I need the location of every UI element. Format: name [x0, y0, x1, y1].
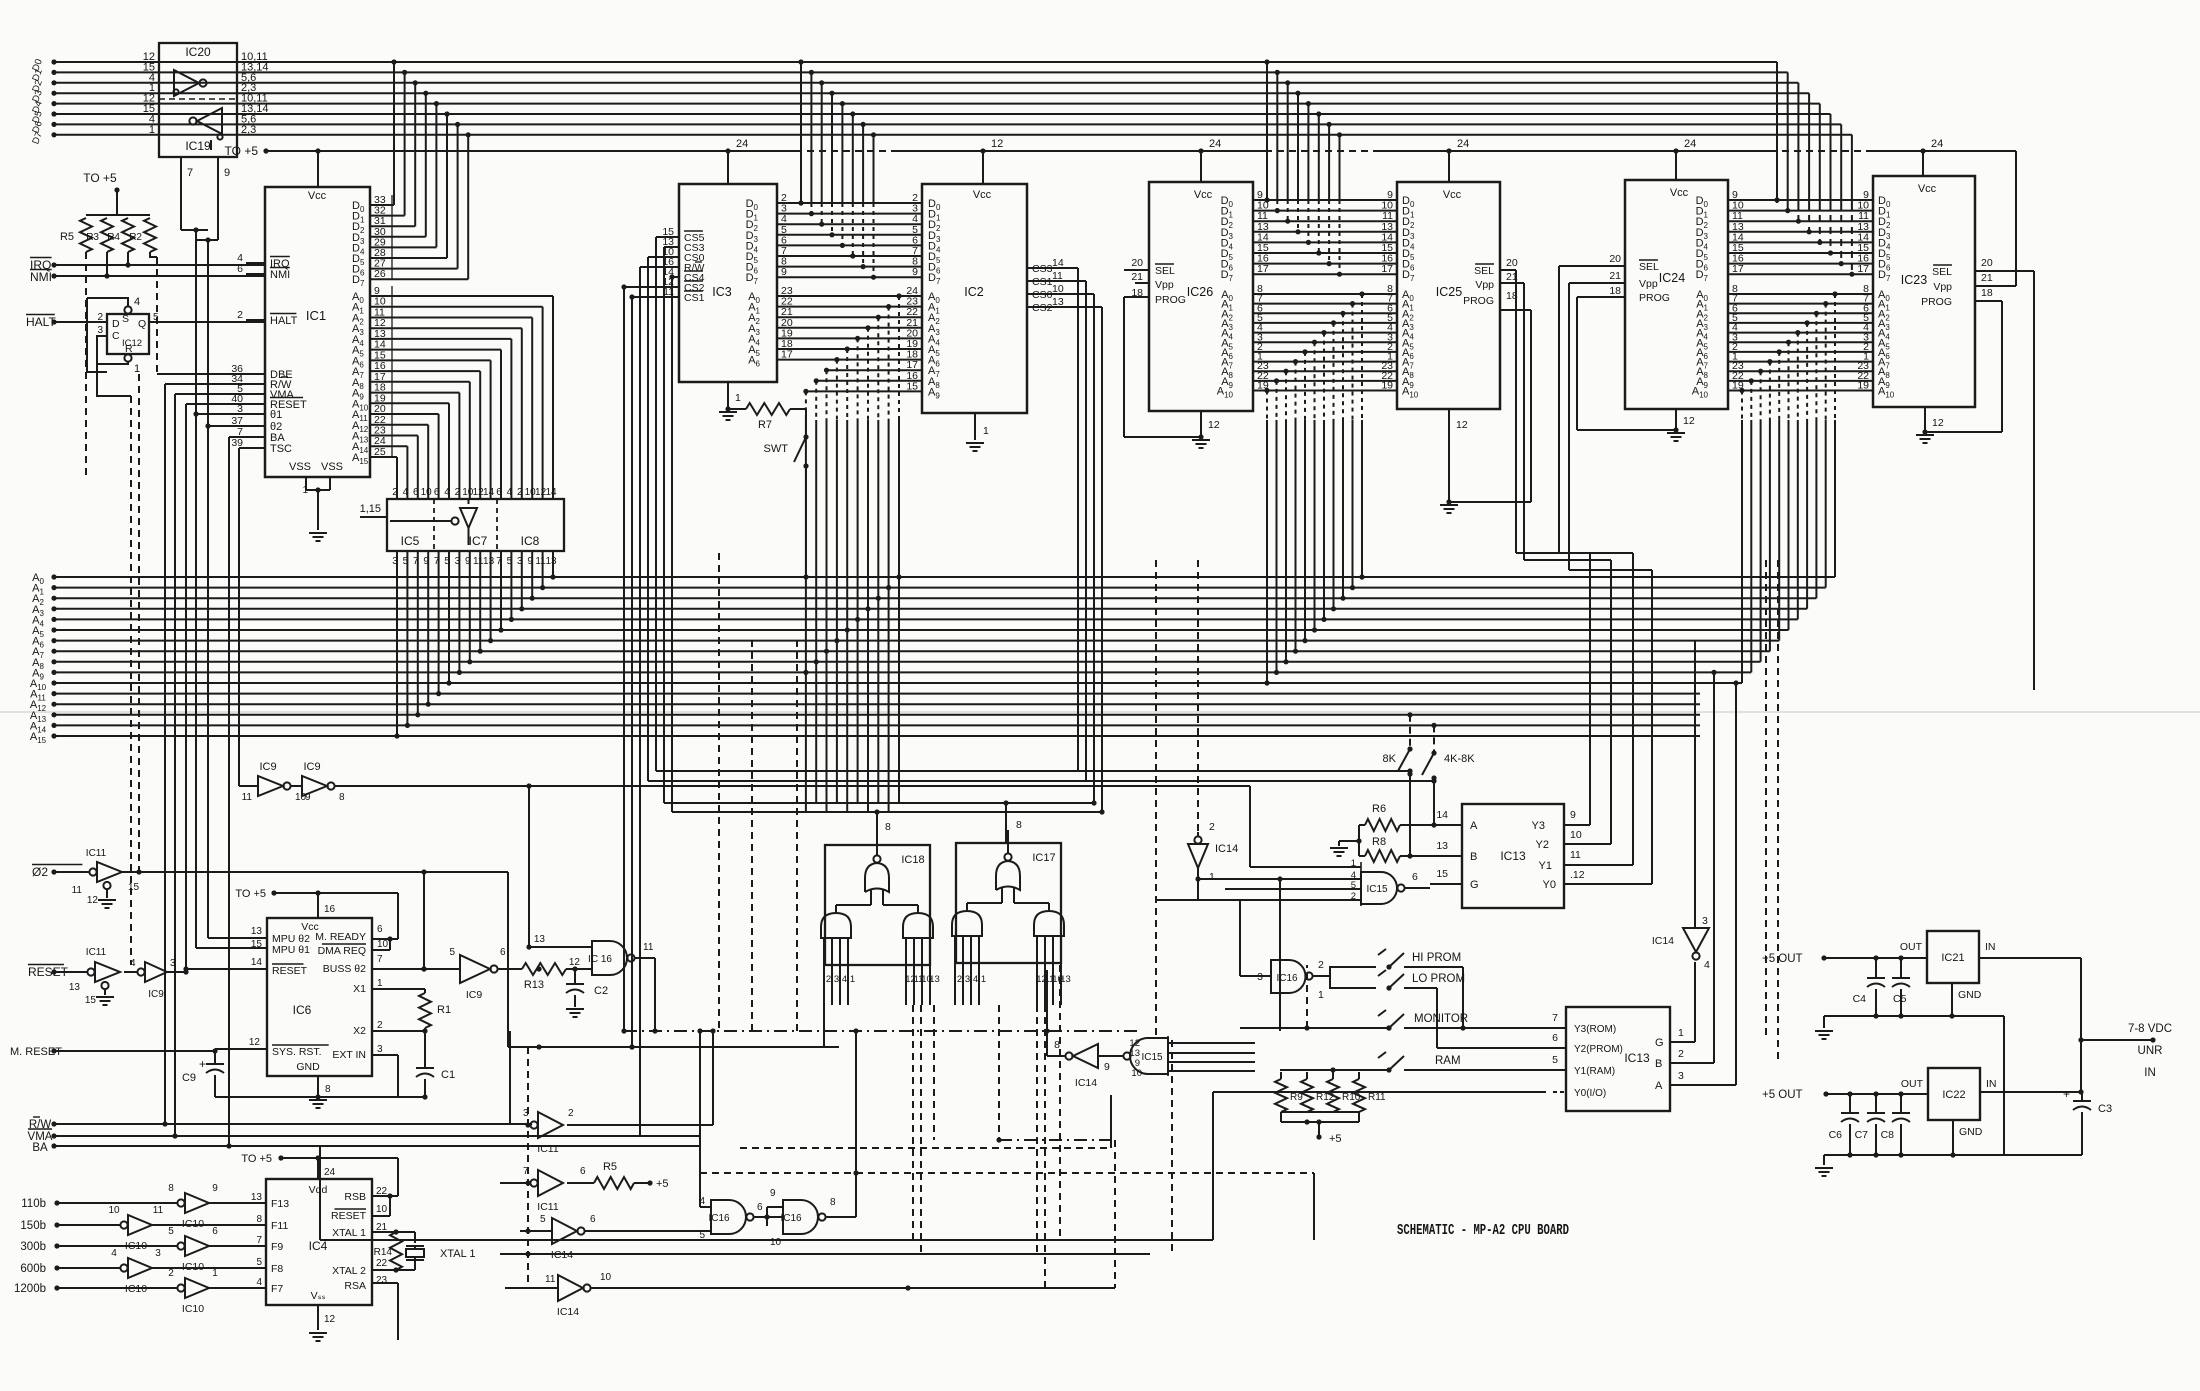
svg-text:6: 6 — [434, 487, 440, 498]
svg-text:IC22: IC22 — [1942, 1089, 1965, 1101]
svg-text:C7: C7 — [1855, 1129, 1869, 1141]
svg-text:4: 4 — [444, 487, 450, 498]
svg-text:10: 10 — [1131, 1068, 1142, 1079]
svg-text:+5: +5 — [656, 1178, 669, 1190]
svg-text:A: A — [1655, 1080, 1663, 1092]
svg-text:14: 14 — [545, 487, 557, 498]
svg-text:7: 7 — [1552, 1012, 1558, 1024]
svg-text:R14: R14 — [374, 1247, 393, 1258]
svg-text:C2: C2 — [594, 985, 608, 997]
svg-text:RESET: RESET — [331, 1210, 367, 1222]
svg-text:Y2(PROM): Y2(PROM) — [1574, 1044, 1623, 1055]
svg-text:7-8 VDC: 7-8 VDC — [2128, 1023, 2172, 1035]
svg-text:2: 2 — [1318, 959, 1324, 971]
svg-text:1: 1 — [1351, 858, 1356, 869]
svg-text:18: 18 — [1609, 285, 1621, 297]
svg-text:R6: R6 — [1372, 803, 1386, 815]
svg-text:2: 2 — [237, 309, 243, 321]
svg-text:3: 3 — [377, 1044, 383, 1055]
svg-text:2: 2 — [377, 1020, 383, 1031]
svg-text:8: 8 — [168, 1183, 174, 1194]
svg-text:1: 1 — [212, 1268, 218, 1279]
svg-text:Vcc: Vcc — [1918, 183, 1937, 195]
svg-text:5: 5 — [449, 947, 455, 958]
svg-text:Q: Q — [138, 318, 146, 330]
svg-text:8K: 8K — [1383, 753, 1397, 765]
svg-text:13: 13 — [251, 926, 263, 937]
svg-text:GND: GND — [1959, 1126, 1983, 1138]
svg-text:5: 5 — [1552, 1054, 1558, 1066]
svg-text:3: 3 — [834, 974, 839, 985]
svg-text:PROG: PROG — [1463, 295, 1494, 307]
svg-text:6: 6 — [212, 1226, 218, 1237]
svg-text:IC7: IC7 — [469, 534, 488, 548]
svg-text:IC17: IC17 — [1032, 852, 1055, 864]
svg-text:11: 11 — [242, 792, 253, 803]
svg-text:15: 15 — [128, 882, 140, 893]
svg-text:GND: GND — [1958, 989, 1982, 1001]
svg-text:D: D — [112, 318, 120, 330]
svg-text:Vₛₛ: Vₛₛ — [311, 1290, 326, 1302]
svg-text:SWT: SWT — [764, 443, 789, 455]
svg-text:C1: C1 — [441, 1069, 455, 1081]
svg-text:12: 12 — [991, 138, 1003, 150]
svg-text:4: 4 — [111, 1248, 117, 1259]
svg-text:TO +5: TO +5 — [235, 888, 266, 900]
svg-text:F11: F11 — [271, 1220, 288, 1232]
svg-text:OUT: OUT — [1900, 941, 1923, 953]
svg-text:14: 14 — [251, 957, 263, 968]
svg-text:IC16: IC16 — [780, 1213, 802, 1224]
svg-text:7: 7 — [256, 1235, 262, 1246]
svg-text:PROG: PROG — [1155, 294, 1186, 306]
svg-text:4: 4 — [507, 487, 513, 498]
svg-text:4: 4 — [842, 974, 847, 985]
svg-text:IC25: IC25 — [1436, 285, 1462, 299]
svg-text:IC23: IC23 — [1901, 273, 1927, 287]
svg-text:4: 4 — [130, 958, 136, 969]
svg-text:Vpp: Vpp — [1933, 281, 1952, 293]
svg-text:4: 4 — [973, 974, 978, 985]
svg-text:Vdd: Vdd — [309, 1184, 328, 1196]
svg-text:6: 6 — [496, 487, 502, 498]
svg-text:24: 24 — [1209, 138, 1221, 150]
svg-text:X1: X1 — [353, 983, 366, 995]
svg-text:13: 13 — [1060, 974, 1071, 985]
svg-text:10: 10 — [108, 1205, 120, 1216]
svg-text:Ø2: Ø2 — [32, 865, 48, 879]
svg-text:TO +5: TO +5 — [225, 144, 259, 158]
svg-text:F13: F13 — [271, 1198, 289, 1210]
svg-text:Vcc: Vcc — [1670, 187, 1689, 199]
svg-text:22: 22 — [376, 1258, 388, 1269]
svg-text:Y2: Y2 — [1536, 839, 1549, 851]
svg-text:NMI: NMI — [30, 270, 52, 284]
svg-text:1: 1 — [735, 392, 741, 404]
svg-text:IC15: IC15 — [1366, 884, 1388, 895]
svg-text:8: 8 — [339, 792, 345, 803]
svg-text:17: 17 — [1732, 263, 1744, 275]
svg-text:C5: C5 — [1893, 993, 1907, 1005]
svg-text:M. READY: M. READY — [315, 931, 366, 943]
svg-text:SEL: SEL — [1474, 265, 1494, 277]
svg-text:VSS: VSS — [289, 461, 311, 473]
svg-text:IC13: IC13 — [1500, 849, 1526, 863]
svg-text:19: 19 — [1857, 380, 1869, 392]
svg-text:Vpp: Vpp — [1475, 279, 1494, 291]
svg-text:10: 10 — [377, 939, 389, 950]
svg-text:20: 20 — [1131, 257, 1143, 269]
svg-text:17: 17 — [1257, 263, 1269, 275]
svg-text:C4: C4 — [1853, 993, 1867, 1005]
svg-text:F9: F9 — [271, 1241, 283, 1253]
svg-text:10: 10 — [421, 487, 433, 498]
svg-text:2: 2 — [168, 1268, 174, 1279]
svg-text:IC9: IC9 — [303, 761, 320, 773]
svg-text:15: 15 — [85, 995, 97, 1006]
svg-text:13: 13 — [534, 934, 546, 945]
svg-text:600b: 600b — [20, 1263, 46, 1275]
svg-text:1: 1 — [850, 974, 855, 985]
svg-text:8: 8 — [830, 1197, 836, 1208]
svg-text:PROG: PROG — [1639, 292, 1670, 304]
svg-text:5: 5 — [168, 1226, 174, 1237]
svg-text:2: 2 — [568, 1108, 574, 1119]
svg-text:SCHEMATIC - MP-A2 CPU BOARD: SCHEMATIC - MP-A2 CPU BOARD — [1397, 1222, 1569, 1239]
svg-text:R13: R13 — [524, 979, 544, 991]
svg-text:4: 4 — [403, 487, 409, 498]
svg-text:1: 1 — [134, 363, 140, 375]
svg-text:RAM: RAM — [1435, 1055, 1461, 1067]
svg-text:14: 14 — [1436, 809, 1448, 821]
svg-text:C3: C3 — [2098, 1103, 2112, 1115]
svg-text:MPU θ1: MPU θ1 — [272, 944, 310, 956]
svg-text:23: 23 — [376, 1275, 388, 1286]
svg-text:20: 20 — [1506, 257, 1518, 269]
svg-text:Vpp: Vpp — [1155, 279, 1174, 291]
svg-text:PROG: PROG — [1921, 296, 1952, 308]
svg-text:B: B — [1655, 1058, 1662, 1070]
svg-text:2: 2 — [392, 487, 398, 498]
svg-text:IC14: IC14 — [557, 1306, 579, 1318]
svg-text:8: 8 — [325, 1084, 331, 1095]
svg-text:NMI: NMI — [270, 269, 290, 281]
svg-text:1: 1 — [1318, 989, 1324, 1001]
svg-text:26: 26 — [374, 268, 386, 280]
svg-text:3: 3 — [1678, 1070, 1684, 1082]
svg-text:4: 4 — [256, 1277, 262, 1288]
svg-text:12: 12 — [569, 957, 581, 968]
svg-text:1: 1 — [1209, 871, 1215, 883]
svg-text:21: 21 — [1131, 271, 1143, 283]
svg-text:12: 12 — [1456, 419, 1468, 431]
svg-text:110b: 110b — [21, 1198, 46, 1210]
svg-text:BA: BA — [32, 1142, 48, 1154]
svg-text:9: 9 — [781, 266, 787, 278]
svg-text:7: 7 — [187, 167, 193, 179]
svg-text:1,15: 1,15 — [360, 503, 381, 515]
svg-text:5: 5 — [153, 312, 159, 323]
svg-text:IN: IN — [2144, 1067, 2156, 1079]
svg-text:+: + — [199, 1057, 206, 1071]
svg-text:S: S — [122, 313, 129, 325]
svg-text:B: B — [1470, 851, 1477, 863]
svg-text:9: 9 — [305, 792, 311, 803]
svg-text:IC18: IC18 — [901, 854, 924, 866]
svg-text:9: 9 — [212, 1183, 218, 1194]
svg-text:25: 25 — [374, 446, 386, 458]
svg-text:IC 16: IC 16 — [588, 954, 612, 965]
svg-text:17: 17 — [1857, 263, 1869, 275]
svg-text:R8: R8 — [1372, 836, 1386, 848]
svg-text:2: 2 — [97, 312, 103, 323]
svg-text:13: 13 — [929, 974, 940, 985]
svg-text:OUT: OUT — [1901, 1078, 1924, 1090]
svg-text:24: 24 — [1684, 138, 1696, 150]
svg-text:IC9: IC9 — [148, 989, 164, 1000]
svg-text:4: 4 — [134, 296, 140, 308]
svg-text:1: 1 — [1678, 1027, 1684, 1039]
svg-text:300b: 300b — [20, 1241, 46, 1253]
svg-text:1200b: 1200b — [14, 1283, 46, 1295]
svg-text:24: 24 — [736, 138, 748, 150]
svg-text:IC8: IC8 — [521, 534, 540, 548]
svg-text:20: 20 — [1981, 257, 1993, 269]
svg-text:12: 12 — [1683, 415, 1695, 427]
svg-text:IC11: IC11 — [537, 1143, 559, 1155]
svg-text:IC11: IC11 — [86, 848, 107, 859]
svg-text:9: 9 — [1570, 809, 1576, 821]
svg-text:24: 24 — [324, 1167, 336, 1178]
svg-text:6: 6 — [1552, 1032, 1558, 1044]
svg-text:13: 13 — [1436, 840, 1448, 852]
svg-text:A: A — [1470, 820, 1478, 832]
svg-text:15: 15 — [906, 380, 918, 392]
svg-text:12: 12 — [1208, 419, 1220, 431]
svg-text:5: 5 — [256, 1257, 262, 1268]
svg-text:Y0: Y0 — [1543, 879, 1556, 891]
svg-text:7: 7 — [377, 954, 383, 965]
svg-text:R4: R4 — [107, 232, 120, 243]
svg-text:20: 20 — [1609, 253, 1621, 265]
svg-text:C9: C9 — [182, 1072, 196, 1084]
svg-text:IC16: IC16 — [1276, 973, 1298, 984]
svg-text:XTAL 1: XTAL 1 — [440, 1248, 475, 1260]
svg-text:1: 1 — [377, 978, 383, 989]
svg-text:R5: R5 — [603, 1161, 617, 1173]
svg-text:Y3(ROM): Y3(ROM) — [1574, 1024, 1616, 1035]
svg-text:10: 10 — [770, 1237, 782, 1248]
svg-text:IC19: IC19 — [185, 139, 211, 153]
svg-text:R1: R1 — [437, 1004, 451, 1016]
svg-text:10: 10 — [600, 1272, 612, 1283]
svg-text:8: 8 — [885, 821, 891, 833]
svg-text:6: 6 — [580, 1166, 586, 1177]
svg-text:C: C — [112, 330, 120, 342]
svg-text:IC14: IC14 — [1652, 935, 1674, 947]
svg-text:HALT: HALT — [270, 315, 298, 327]
svg-text:Vcc: Vcc — [973, 189, 992, 201]
svg-text:6: 6 — [377, 924, 383, 935]
svg-text:13: 13 — [483, 556, 495, 567]
svg-text:Vcc: Vcc — [1194, 189, 1213, 201]
svg-text:IC11: IC11 — [537, 1201, 559, 1213]
svg-text:RSB: RSB — [344, 1191, 366, 1203]
svg-text:+: + — [2063, 1087, 2070, 1101]
svg-text:10: 10 — [1570, 829, 1582, 841]
svg-text:IC20: IC20 — [185, 45, 211, 59]
svg-text:9: 9 — [770, 1188, 776, 1199]
svg-text:5: 5 — [540, 1214, 546, 1225]
svg-text:IC21: IC21 — [1941, 952, 1964, 964]
svg-text:24: 24 — [1931, 138, 1943, 150]
svg-text:RSA: RSA — [344, 1280, 366, 1292]
svg-text:15: 15 — [1436, 868, 1448, 880]
svg-text:R3: R3 — [86, 232, 99, 243]
svg-text:F7: F7 — [271, 1283, 283, 1295]
svg-text:6: 6 — [413, 487, 419, 498]
svg-text:F8: F8 — [271, 1263, 283, 1275]
svg-text:CS1: CS1 — [684, 292, 705, 304]
svg-text:Y3: Y3 — [1532, 820, 1545, 832]
svg-text:SEL: SEL — [1639, 261, 1659, 273]
svg-text:LO PROM: LO PROM — [1412, 973, 1465, 985]
svg-text:2,3: 2,3 — [241, 124, 256, 136]
svg-text:3: 3 — [155, 1248, 161, 1259]
svg-text:2: 2 — [455, 487, 461, 498]
svg-text:IC14: IC14 — [1215, 843, 1238, 855]
svg-text:IC4: IC4 — [309, 1239, 328, 1253]
svg-text:R5: R5 — [60, 231, 74, 243]
svg-text:.12: .12 — [1570, 869, 1585, 881]
svg-text:16: 16 — [324, 904, 336, 915]
svg-text:R11: R11 — [1368, 1092, 1386, 1103]
svg-text:R7: R7 — [758, 419, 772, 431]
svg-text:Y1: Y1 — [1539, 860, 1552, 872]
svg-text:6: 6 — [1412, 871, 1418, 883]
svg-text:11: 11 — [643, 942, 654, 953]
svg-text:1: 1 — [981, 974, 986, 985]
svg-text:21: 21 — [1609, 270, 1621, 282]
svg-text:G: G — [1470, 879, 1479, 891]
svg-text:IC9: IC9 — [466, 989, 483, 1001]
svg-text:IC16: IC16 — [708, 1213, 730, 1224]
svg-text:IC1: IC1 — [306, 308, 326, 323]
svg-text:R: R — [125, 343, 133, 355]
svg-text:11: 11 — [153, 1205, 164, 1216]
svg-text:11: 11 — [545, 1274, 556, 1285]
svg-text:9: 9 — [912, 266, 918, 278]
svg-text:IC10: IC10 — [182, 1303, 204, 1315]
svg-text:Y0(I/O): Y0(I/O) — [1574, 1088, 1606, 1099]
svg-text:SEL: SEL — [1932, 266, 1952, 278]
svg-text:XTAL 2: XTAL 2 — [332, 1265, 366, 1277]
svg-text:IC11: IC11 — [86, 947, 107, 958]
svg-text:IN: IN — [1985, 941, 1996, 953]
svg-text:6: 6 — [590, 1214, 596, 1225]
svg-text:IC15: IC15 — [1141, 1052, 1163, 1063]
svg-text:TO +5: TO +5 — [241, 1153, 272, 1165]
svg-text:Vpp: Vpp — [1639, 278, 1658, 290]
svg-text:12: 12 — [1932, 417, 1944, 429]
svg-text:8: 8 — [1054, 1039, 1060, 1051]
svg-text:θ1: θ1 — [270, 409, 282, 421]
svg-text:2: 2 — [517, 487, 523, 498]
svg-text:IC13: IC13 — [1624, 1051, 1650, 1065]
svg-text:12: 12 — [87, 895, 99, 906]
svg-text:IC24: IC24 — [1659, 271, 1685, 285]
svg-text:+5: +5 — [1329, 1133, 1342, 1145]
svg-text:VSS: VSS — [321, 461, 343, 473]
svg-text:19: 19 — [1381, 380, 1393, 392]
svg-text:6: 6 — [757, 1202, 763, 1213]
svg-text:3: 3 — [170, 958, 176, 969]
svg-text:Vcc: Vcc — [1443, 189, 1462, 201]
svg-text:UNR: UNR — [2138, 1045, 2163, 1057]
svg-text:10: 10 — [376, 1204, 388, 1215]
svg-text:X2: X2 — [353, 1025, 366, 1037]
svg-text:12: 12 — [249, 1037, 261, 1048]
svg-text:4K-8K: 4K-8K — [1444, 753, 1475, 765]
svg-text:18: 18 — [1981, 287, 1993, 299]
svg-text:3: 3 — [965, 974, 970, 985]
svg-text:9: 9 — [224, 167, 230, 179]
svg-text:EXT IN: EXT IN — [332, 1049, 366, 1061]
svg-text:21: 21 — [1981, 272, 1993, 284]
svg-text:1: 1 — [149, 124, 155, 136]
svg-text:13: 13 — [251, 1192, 263, 1203]
svg-text:RESET: RESET — [272, 965, 308, 977]
svg-text:150b: 150b — [20, 1220, 46, 1232]
svg-text:11: 11 — [72, 885, 83, 896]
svg-text:3: 3 — [1702, 915, 1708, 927]
svg-text:SYS. RST.: SYS. RST. — [272, 1046, 322, 1058]
svg-text:HI PROM: HI PROM — [1412, 952, 1461, 964]
svg-text:BUSS θ2: BUSS θ2 — [323, 963, 366, 975]
svg-text:14: 14 — [483, 487, 495, 498]
svg-text:+5 OUT: +5 OUT — [1762, 953, 1803, 965]
svg-text:G: G — [1655, 1037, 1664, 1049]
svg-text:8: 8 — [1016, 819, 1022, 831]
svg-text:IC3: IC3 — [712, 285, 732, 299]
svg-text:1: 1 — [983, 425, 989, 437]
svg-text:9: 9 — [1104, 1061, 1110, 1073]
svg-text:17: 17 — [781, 349, 793, 361]
svg-text:IC2: IC2 — [964, 285, 984, 299]
svg-text:TSC: TSC — [270, 443, 292, 455]
svg-text:24: 24 — [1457, 138, 1469, 150]
svg-text:6: 6 — [500, 947, 506, 958]
svg-text:3: 3 — [97, 325, 103, 336]
svg-text:IC14: IC14 — [1075, 1077, 1097, 1089]
svg-text:MONITOR: MONITOR — [1414, 1013, 1468, 1025]
svg-text:4: 4 — [1704, 959, 1710, 971]
svg-text:17: 17 — [1381, 263, 1393, 275]
svg-text:2: 2 — [957, 974, 962, 985]
svg-text:+5 OUT: +5 OUT — [1762, 1089, 1803, 1101]
svg-text:12: 12 — [324, 1314, 336, 1325]
svg-text:IC9: IC9 — [259, 761, 276, 773]
svg-text:IN: IN — [1986, 1078, 1997, 1090]
svg-text:2: 2 — [826, 974, 831, 985]
svg-text:15: 15 — [251, 939, 263, 950]
svg-text:TO +5: TO +5 — [83, 171, 117, 185]
svg-text:C6: C6 — [1829, 1129, 1843, 1141]
svg-text:1: 1 — [302, 485, 308, 496]
svg-text:Vcc: Vcc — [308, 190, 327, 202]
svg-text:13: 13 — [545, 556, 557, 567]
svg-text:11: 11 — [1570, 849, 1581, 861]
